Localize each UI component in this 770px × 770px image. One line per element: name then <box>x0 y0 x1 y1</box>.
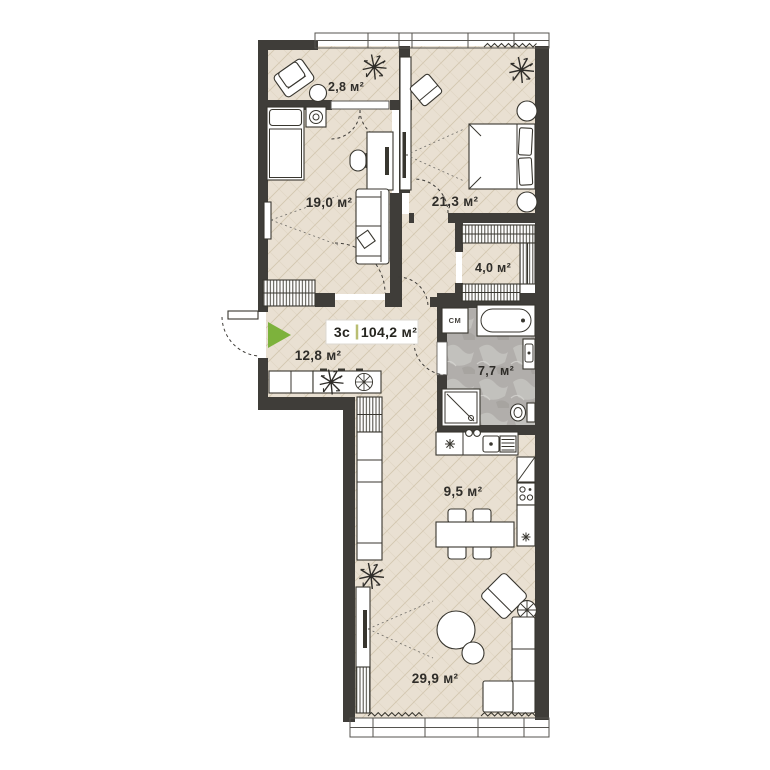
kitchen-cabinets-icon <box>357 432 382 560</box>
bottom-window-band <box>350 718 549 737</box>
floor-plan: СМ <box>0 0 770 770</box>
bathroom-door-sill <box>437 342 447 375</box>
closet-icon <box>462 284 520 301</box>
nightstand-icon <box>517 192 537 212</box>
fridge-icon <box>517 457 535 482</box>
cooktop-icon <box>517 483 535 505</box>
washing-machine-icon: СМ <box>442 308 468 333</box>
room19-area-label: 19,0 м² <box>306 195 353 210</box>
cabinet-icon <box>269 371 313 393</box>
counter-right-icon <box>517 505 535 546</box>
burner-star-icon <box>445 439 455 449</box>
shower-icon <box>442 389 480 426</box>
kitchen-area-label: 9,5 м² <box>444 484 483 499</box>
wardrobe-icon <box>263 280 315 306</box>
fan-plant-icon <box>355 373 372 390</box>
entrance-door-leaf <box>228 311 258 319</box>
toilet-icon <box>511 403 536 422</box>
wardrobe-area-label: 4,0 м² <box>475 261 511 275</box>
bathtub-icon <box>477 305 535 336</box>
shelf-icon <box>356 667 370 713</box>
desk-icon <box>367 132 393 190</box>
floor-plan-page: СМ <box>0 0 770 770</box>
plan-badge: 3с 104,2 м² <box>326 320 418 344</box>
bed-icon <box>267 107 304 180</box>
washing-machine-label: СМ <box>449 316 462 325</box>
balcony-area-label: 2,8 м² <box>328 80 364 94</box>
bathroom-area-label: 7,7 м² <box>478 364 514 378</box>
closet-icon <box>520 243 535 284</box>
side-table-icon <box>310 85 327 102</box>
faucet-icon <box>466 430 473 437</box>
badge-type-label: 3с <box>334 324 350 340</box>
sink-icon <box>523 339 535 369</box>
coffee-table-icon <box>462 642 484 664</box>
corridor-floor <box>397 214 456 300</box>
pouf-icon <box>306 107 326 127</box>
entrance-door-arc <box>222 317 258 356</box>
chair-icon <box>350 150 366 171</box>
closet-icon <box>462 225 535 243</box>
badge-total-area: 104,2 м² <box>361 324 417 340</box>
faucet-icon <box>474 430 481 437</box>
kitchen-counter-icon <box>436 430 518 455</box>
hallway-area-label: 12,8 м² <box>295 348 342 363</box>
burner-star-icon <box>522 533 531 542</box>
balcony-door-sill <box>331 101 389 109</box>
bedroom-area-label: 21,3 м² <box>432 194 479 209</box>
double-bed-icon <box>469 124 535 189</box>
living-room-area-label: 29,9 м² <box>412 671 459 686</box>
console-shelf-icon <box>313 369 381 395</box>
sofa-icon <box>356 189 389 264</box>
nightstand-icon <box>517 101 537 121</box>
tall-cabinet-icon <box>357 397 382 432</box>
kitchen-sink-icon <box>483 436 516 452</box>
